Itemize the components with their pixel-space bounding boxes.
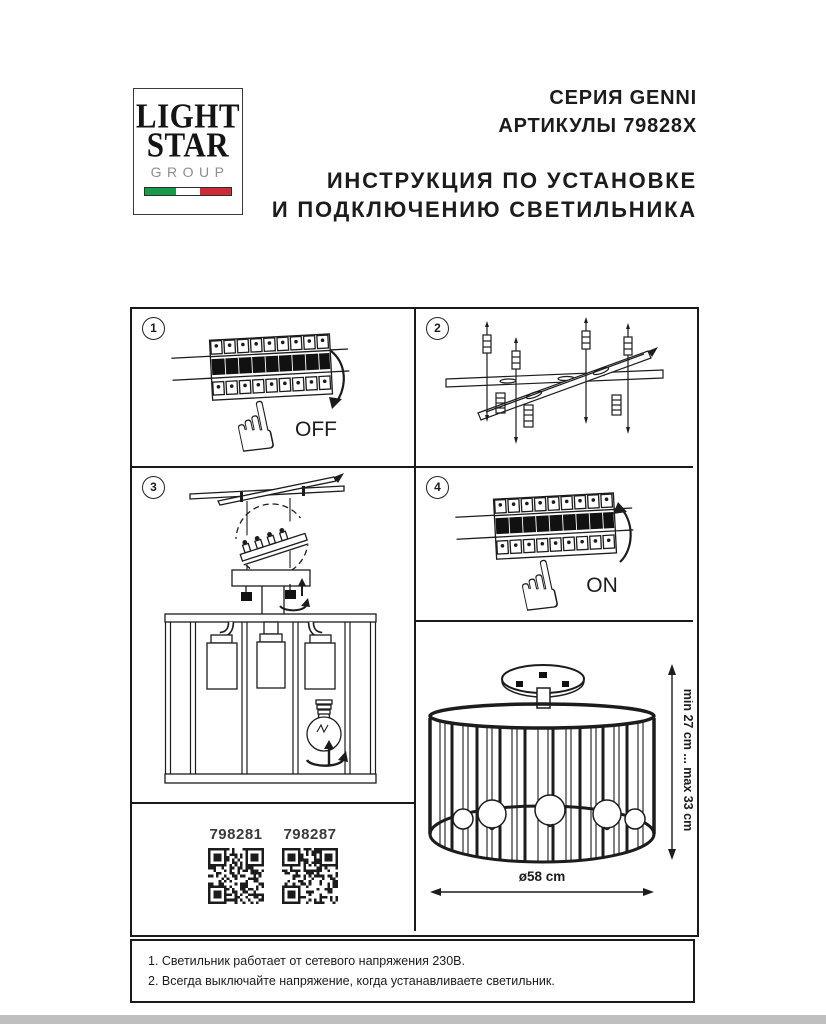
note-line-2: 2. Всегда выключайте напряжение, когда у… — [148, 971, 677, 991]
step-2-panel: 2 — [416, 309, 693, 466]
title-line-2: И ПОДКЛЮЧЕНИЮ СВЕТИЛЬНИКА — [272, 195, 697, 224]
flag-green-segment — [145, 188, 176, 195]
arrow-down-curve — [331, 351, 344, 403]
step-1-badge: 1 — [142, 317, 165, 340]
page-edge-shadow — [0, 1015, 826, 1024]
lamp-drawing: min 27 cm ... max 33 cm ø58 cm — [416, 622, 693, 931]
logo-word-group: GROUP — [138, 164, 242, 180]
flag-white-segment — [176, 188, 200, 195]
header-series-block: СЕРИЯ GENNI АРТИКУЛЫ 79828X — [498, 84, 697, 140]
step-3-badge: 3 — [142, 476, 165, 499]
step-2-badge: 2 — [426, 317, 449, 340]
assembly-diagram — [132, 468, 414, 802]
arrow-down-head — [329, 397, 342, 409]
qr-panel: 798281 798287 — [132, 804, 414, 931]
step-3-panel: 3 — [132, 468, 414, 802]
diameter-dimension-label: ø58 cm — [519, 869, 566, 884]
lightstar-logo: LIGHT STAR GROUP — [133, 88, 243, 215]
qr-item-right: 798287 — [282, 826, 338, 909]
on-label: ON — [586, 574, 618, 597]
lamp-dimensions-panel: min 27 cm ... max 33 cm ø58 cm — [416, 622, 693, 931]
page-title: ИНСТРУКЦИЯ ПО УСТАНОВКЕ И ПОДКЛЮЧЕНИЮ СВ… — [272, 166, 697, 224]
note-line-1: 1. Светильник работает от сетевого напря… — [148, 951, 677, 971]
bulb-icon — [307, 700, 341, 751]
step-4-panel: 4 ☝ ON — [416, 468, 693, 620]
breaker-off-diagram: ☝ OFF — [132, 309, 414, 466]
logo-word-star: STAR — [134, 128, 242, 160]
step-4-badge: 4 — [426, 476, 449, 499]
screw-assembly — [483, 321, 491, 422]
qr-item-left: 798281 — [208, 826, 264, 909]
breaker-on-diagram: ☝ ON — [416, 468, 693, 620]
qr-code-image — [282, 848, 338, 909]
bulbs — [453, 795, 645, 830]
qr-code-label: 798287 — [282, 826, 338, 843]
height-dimension — [668, 664, 676, 860]
instruction-grid: 1 ☝ OFF — [130, 307, 699, 937]
qr-code-label: 798281 — [208, 826, 264, 843]
title-line-1: ИНСТРУКЦИЯ ПО УСТАНОВКЕ — [272, 166, 697, 195]
instruction-page: LIGHT STAR GROUP СЕРИЯ GENNI АРТИКУЛЫ 79… — [0, 0, 826, 1024]
notes-box: 1. Светильник работает от сетевого напря… — [130, 939, 695, 1003]
step-1-panel: 1 ☝ OFF — [132, 309, 414, 466]
flag-red-segment — [200, 188, 231, 195]
articles-line: АРТИКУЛЫ 79828X — [498, 112, 697, 140]
qr-code-image — [208, 848, 264, 909]
diameter-dimension — [430, 888, 654, 896]
series-title: СЕРИЯ GENNI — [498, 84, 697, 112]
terminal-block — [232, 517, 313, 567]
mounting-bars-diagram — [416, 309, 693, 466]
off-label: OFF — [295, 418, 337, 441]
italian-flag-bar — [144, 187, 232, 196]
height-dimension-label: min 27 cm ... max 33 cm — [681, 689, 693, 831]
hand-icon: ☝ — [226, 386, 283, 466]
arrow-up-curve — [620, 508, 631, 562]
